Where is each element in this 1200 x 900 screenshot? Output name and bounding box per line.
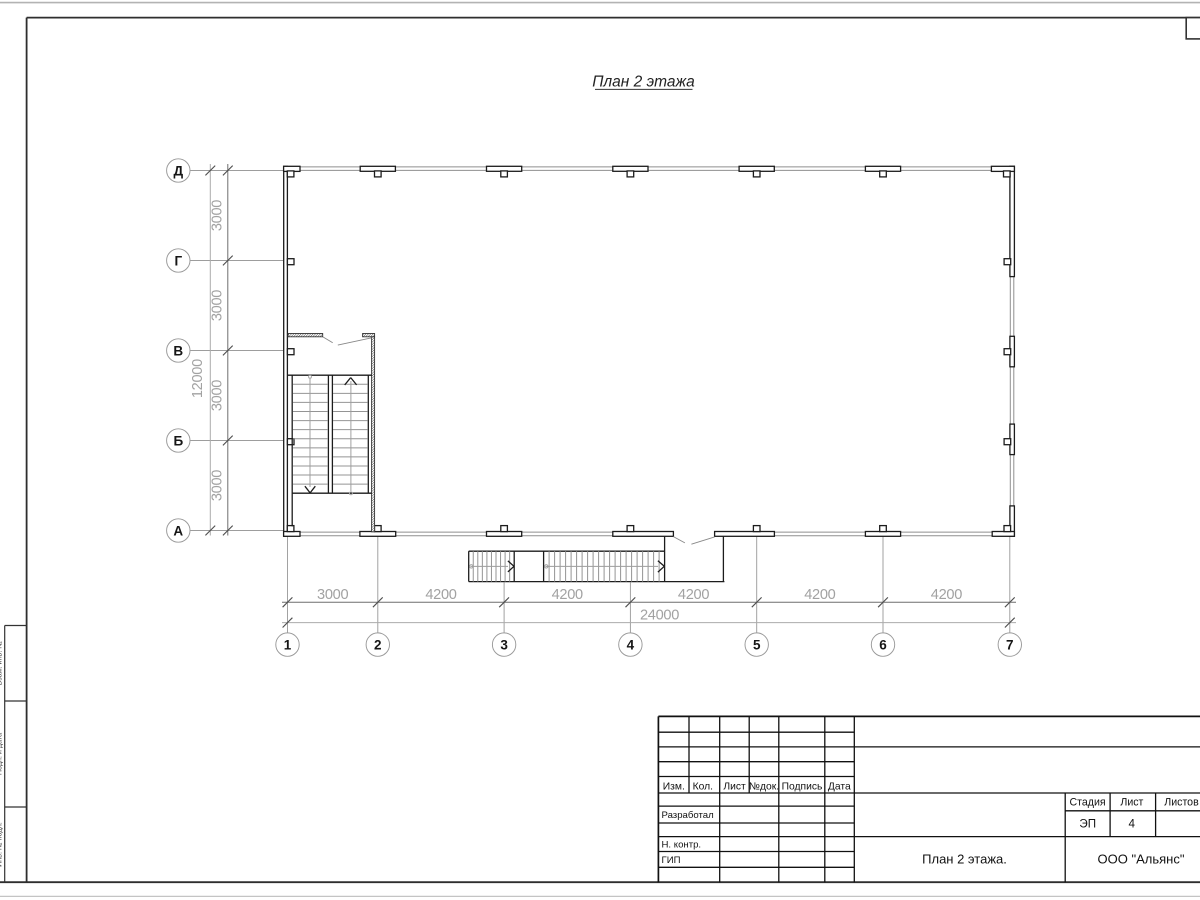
- svg-text:Взам. инв. №: Взам. инв. №: [0, 641, 4, 686]
- svg-text:№док.: №док.: [749, 782, 779, 793]
- svg-text:Листов: Листов: [1164, 797, 1199, 809]
- svg-text:4200: 4200: [804, 587, 835, 603]
- svg-text:Подп. и дата: Подп. и дата: [0, 733, 4, 775]
- svg-text:Н. контр.: Н. контр.: [662, 840, 702, 851]
- svg-text:План 2 этажа: План 2 этажа: [592, 74, 695, 91]
- svg-text:3000: 3000: [317, 587, 348, 603]
- svg-text:3000: 3000: [210, 380, 226, 411]
- svg-text:Дата: Дата: [828, 782, 851, 793]
- svg-text:Разработал: Разработал: [662, 810, 714, 821]
- svg-text:А: А: [173, 523, 183, 538]
- svg-text:Г: Г: [174, 253, 182, 268]
- svg-text:4200: 4200: [931, 587, 962, 603]
- svg-text:1: 1: [284, 638, 292, 653]
- svg-text:Лист: Лист: [723, 782, 746, 793]
- svg-text:Стадия: Стадия: [1070, 797, 1106, 809]
- svg-text:Лист: Лист: [1120, 797, 1143, 809]
- svg-text:12000: 12000: [190, 359, 206, 398]
- svg-text:3000: 3000: [210, 470, 226, 501]
- svg-text:ГИП: ГИП: [662, 855, 681, 866]
- svg-text:3000: 3000: [210, 200, 226, 231]
- svg-text:4: 4: [627, 638, 635, 653]
- svg-text:Инв. № подл.: Инв. № подл.: [0, 822, 4, 867]
- svg-text:4200: 4200: [425, 587, 456, 603]
- svg-text:4: 4: [1128, 818, 1135, 831]
- svg-text:ЭП: ЭП: [1079, 818, 1096, 831]
- svg-text:В: В: [173, 343, 183, 358]
- svg-text:Подпись: Подпись: [782, 782, 823, 793]
- svg-text:3000: 3000: [210, 290, 226, 321]
- svg-text:Кол.: Кол.: [693, 782, 713, 793]
- svg-text:2: 2: [374, 638, 382, 653]
- svg-text:4200: 4200: [552, 587, 583, 603]
- svg-text:ООО "Альянс": ООО "Альянс": [1098, 851, 1185, 866]
- svg-text:5: 5: [753, 638, 761, 653]
- svg-text:3: 3: [500, 638, 508, 653]
- svg-text:4200: 4200: [678, 587, 709, 603]
- svg-text:7: 7: [1006, 638, 1014, 653]
- svg-text:План 2 этажа.: План 2 этажа.: [922, 851, 1007, 866]
- svg-text:Д: Д: [173, 163, 183, 178]
- svg-text:Изм.: Изм.: [663, 782, 685, 793]
- svg-text:6: 6: [879, 638, 887, 653]
- svg-text:Б: Б: [173, 433, 183, 448]
- svg-text:24000: 24000: [640, 608, 679, 624]
